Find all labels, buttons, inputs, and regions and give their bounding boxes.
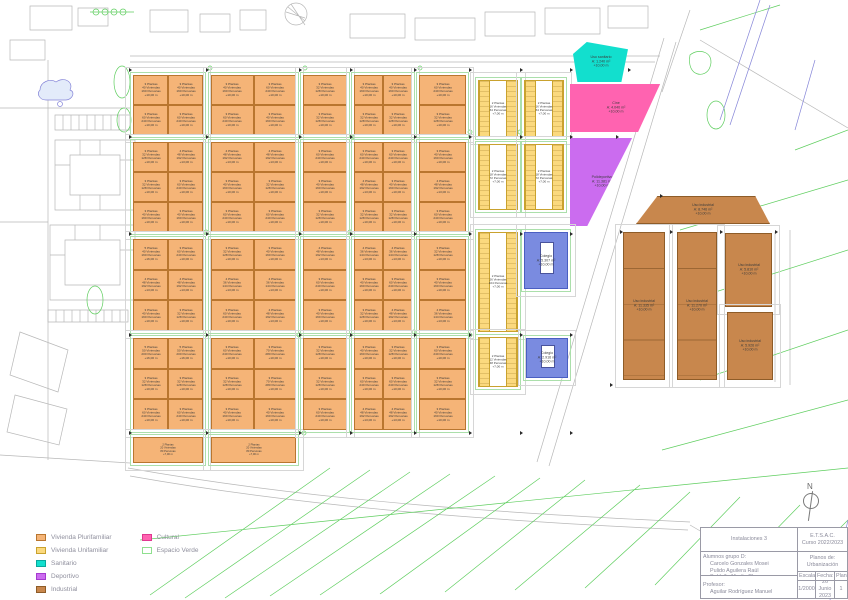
- survey-tick: [350, 68, 353, 72]
- parcel-label: 3 Plantas60 Viviendas240 Personas+10,00 …: [176, 113, 195, 127]
- parcel-plurifamiliar: 4 Plantas48 Viviendas192 Personas+13,00 …: [419, 172, 466, 202]
- parcel-plurifamiliar: 3 Plantas32 Viviendas128 Personas+10,00 …: [383, 202, 412, 232]
- survey-tick: [720, 230, 723, 234]
- parcel-plurifamiliar: 3 Plantas60 Viviendas240 Personas+10,00 …: [211, 300, 254, 331]
- parcel-label: 3 Plantas40 Viviendas160 Personas+10,00 …: [433, 150, 452, 164]
- parcel-plurifamiliar: 3 Plantas60 Viviendas240 Personas+10,00 …: [303, 142, 347, 172]
- parcel-label: 3 Plantas40 Viviendas160 Personas+10,00 …: [359, 278, 378, 292]
- survey-tick: [610, 383, 613, 387]
- parcel-label: 3 Plantas60 Viviendas240 Personas+10,00 …: [388, 278, 407, 292]
- parcel-label: 3 Plantas40 Viviendas160 Personas+10,00 …: [359, 346, 378, 360]
- survey-tick: [414, 68, 417, 72]
- parcel-plurifamiliar: 3 Plantas60 Viviendas240 Personas+10,00 …: [354, 142, 383, 172]
- parcel-label: ColegioA: 5.307 m²+10,00 m: [537, 254, 556, 266]
- parcel-plurifamiliar: 3 Plantas32 Viviendas128 Personas+10,00 …: [383, 105, 412, 135]
- survey-tick: [206, 431, 209, 435]
- parcel-sanitario: Uso sanitarioA: 1.240 m²+10,00 m: [573, 42, 628, 82]
- parcel-label: Uso industrialA: 5.810 m²+10,00 m: [738, 264, 760, 276]
- parcel-label: 3 Plantas40 Viviendas160 Personas+10,00 …: [141, 83, 160, 97]
- parcel-label: 2 Plantas20 Viviendas80 Personas+7,00 m: [160, 444, 175, 456]
- survey-tick: [206, 333, 209, 337]
- parcel-plurifamiliar: 4 Plantas48 Viviendas192 Personas+13,00 …: [254, 300, 297, 331]
- swatch-plurifamiliar: [36, 534, 46, 541]
- parcel-plurifamiliar: 3 Plantas60 Viviendas240 Personas+10,00 …: [303, 399, 347, 430]
- parcel-label: 2 Plantas26 Viviendas104 Personas+7,00 m: [489, 275, 508, 289]
- parcel-plurifamiliar: 3 Plantas32 Viviendas128 Personas+10,00 …: [354, 300, 383, 331]
- parcel-label: 3 Plantas40 Viviendas160 Personas+10,00 …: [223, 180, 242, 194]
- parcel-plurifamiliar: 3 Plantas60 Viviendas240 Personas+10,00 …: [383, 270, 412, 301]
- survey-tick: [299, 68, 302, 72]
- parcel-plurifamiliar: 3 Plantas60 Viviendas240 Personas+10,00 …: [254, 202, 297, 232]
- parcel-plurifamiliar: 5 Plantas40 Viviendas160 Personas+16,00 …: [133, 239, 168, 270]
- parcel-label: 3 Plantas40 Viviendas160 Personas+10,00 …: [359, 83, 378, 97]
- parcel-label: 3 Plantas60 Viviendas240 Personas+10,00 …: [265, 210, 284, 224]
- parcel-plurifamiliar: 3 Plantas32 Viviendas128 Personas+10,00 …: [133, 369, 168, 400]
- project-title: Instalaciones 3: [701, 528, 797, 551]
- parcel-label: 3 Plantas60 Viviendas240 Personas+10,00 …: [176, 407, 195, 421]
- swatch-industrial: [36, 586, 46, 593]
- parcel-plurifamiliar: 3 Plantas32 Viviendas128 Personas+10,00 …: [133, 172, 168, 202]
- parcel-plurifamiliar: 3 Plantas60 Viviendas240 Personas+10,00 …: [211, 202, 254, 232]
- school-course: E.T.S.A.C. Curso 2022/2023: [797, 528, 847, 551]
- parcel-label: 3 Plantas40 Viviendas160 Personas+10,00 …: [223, 83, 242, 97]
- professor-cell: Profesor: Aguilar Rodríguez Manuel: [701, 575, 797, 598]
- date-value: 26 Junio 2023: [815, 580, 834, 598]
- parcel-plurifamiliar: 3 Plantas40 Viviendas160 Personas+10,00 …: [254, 105, 297, 135]
- parcel-industrial: Uso industrialA: 5.810 m²+10,00 m: [725, 233, 772, 307]
- parcel-label: 4 Plantas48 Viviendas192 Personas+13,00 …: [141, 278, 160, 292]
- survey-tick: [660, 194, 663, 198]
- urban-plan-sheet: 3 Plantas40 Viviendas160 Personas+10,00 …: [0, 0, 848, 600]
- scale-value: 1/2000: [797, 580, 815, 598]
- parcel-label: 3 Plantas60 Viviendas240 Personas+10,00 …: [265, 83, 284, 97]
- parcel-label: 3 Plantas60 Viviendas240 Personas+10,00 …: [315, 278, 334, 292]
- parcel-label: 4 Plantas48 Viviendas192 Personas+13,00 …: [265, 150, 284, 164]
- student-name-2: Pulido Aguilera Raúl: [703, 568, 795, 575]
- parcel-plurifamiliar: 3 Plantas40 Viviendas160 Personas+10,00 …: [168, 75, 203, 105]
- survey-tick: [414, 135, 417, 139]
- parcel-label: Uso industrialA: 5.926 m²+10,00 m: [739, 340, 761, 352]
- survey-tick: [299, 431, 302, 435]
- parcel-plurifamiliar: 4 Plantas48 Viviendas192 Personas+13,00 …: [354, 172, 383, 202]
- parcel-label: CineA: 4.040 m²+10,00 m: [607, 102, 626, 114]
- parcel-plurifamiliar: 5 Plantas50 Viviendas200 Personas+16,00 …: [133, 338, 168, 369]
- parcel-docente: ColegioA: 2.916 m²+10,00 m: [526, 338, 568, 378]
- swatch-cultural: [142, 534, 152, 541]
- legend-label: Deportivo: [51, 573, 79, 580]
- parcel-label: 3 Plantas40 Viviendas160 Personas+10,00 …: [141, 308, 160, 322]
- legend-item-industrial: Industrial: [36, 586, 112, 593]
- parcel-plurifamiliar: 4 Plantas48 Viviendas192 Personas+13,00 …: [211, 142, 254, 172]
- parcel-plurifamiliar: 3 Plantas60 Viviendas240 Personas+10,00 …: [168, 239, 203, 270]
- parcel-label: 2 Plantas18 Viviendas72 Personas+7,00 m: [489, 170, 506, 184]
- parcel-label: 3 Plantas60 Viviendas240 Personas+10,00 …: [223, 346, 242, 360]
- survey-tick: [570, 232, 573, 236]
- title-block: Instalaciones 3 E.T.S.A.C. Curso 2022/20…: [700, 527, 848, 599]
- parcel-plurifamiliar: 3 Plantas40 Viviendas160 Personas+10,00 …: [254, 239, 297, 270]
- parcel-docente: ColegioA: 5.307 m²+10,00 m: [524, 232, 568, 289]
- parcel-label: 3 Plantas32 Viviendas128 Personas+10,00 …: [176, 308, 195, 322]
- survey-tick: [350, 135, 353, 139]
- parcel-label: 3 Plantas60 Viviendas240 Personas+10,00 …: [176, 180, 195, 194]
- students-cell: Alumnos grupo D: Carcelo Gonzales Mosei …: [701, 551, 797, 575]
- parcel-label: 4 Plantas48 Viviendas192 Personas+13,00 …: [315, 247, 334, 261]
- survey-tick: [469, 431, 472, 435]
- parcel-plurifamiliar: 3 Plantas40 Viviendas160 Personas+10,00 …: [133, 300, 168, 331]
- parcel-label: 3 Plantas32 Viviendas128 Personas+10,00 …: [176, 377, 195, 391]
- survey-tick: [520, 232, 523, 236]
- survey-tick: [469, 232, 472, 236]
- parcel-plurifamiliar: 3 Plantas32 Viviendas128 Personas+10,00 …: [419, 369, 466, 400]
- parcel-label: 3 Plantas32 Viviendas128 Personas+10,00 …: [388, 210, 407, 224]
- survey-tick: [616, 135, 619, 139]
- parcel-label: 3 Plantas60 Viviendas240 Personas+10,00 …: [315, 407, 334, 421]
- legend-column-right: Cultural Espacio Verde: [142, 534, 199, 593]
- swatch-unifamiliar: [36, 547, 46, 554]
- parcel-label: 3 Plantas60 Viviendas240 Personas+10,00 …: [433, 83, 452, 97]
- parcel-plurifamiliar: 3 Plantas40 Viviendas160 Personas+10,00 …: [419, 142, 466, 172]
- row-house-band: [506, 338, 517, 386]
- survey-tick: [775, 230, 778, 234]
- parcel-plurifamiliar: 3 Plantas60 Viviendas240 Personas+10,00 …: [211, 338, 254, 369]
- parcel-label: 4 Plantas48 Viviendas192 Personas+13,00 …: [176, 150, 195, 164]
- parcel-cultural: CineA: 4.040 m²+10,00 m: [570, 84, 662, 132]
- parcel-plurifamiliar: 4 Plantas48 Viviendas192 Personas+13,00 …: [383, 399, 412, 430]
- parcel-industrial: Uso industrialA: 8.746 m²+10,00 m: [636, 196, 770, 224]
- parcel-industrial: Uso industrialA: 5.926 m²+10,00 m: [727, 312, 773, 380]
- parcel-label: 3 Plantas40 Viviendas160 Personas+10,00 …: [388, 83, 407, 97]
- parcel-unifamiliar: 2 Plantas16 Viviendas64 Personas+7,00 m: [478, 80, 518, 137]
- parcel-plurifamiliar: 4 Plantas48 Viviendas192 Personas+13,00 …: [168, 142, 203, 172]
- survey-tick: [206, 135, 209, 139]
- parcel-label: 5 Plantas50 Viviendas200 Personas+16,00 …: [176, 346, 195, 360]
- parcel-label: 3 Plantas60 Viviendas240 Personas+10,00 …: [433, 210, 452, 224]
- parcel-label: 3 Plantas32 Viviendas128 Personas+10,00 …: [141, 180, 160, 194]
- parcel-label: 3 Plantas32 Viviendas128 Personas+10,00 …: [141, 377, 160, 391]
- parcel-label: 3 Plantas32 Viviendas128 Personas+10,00 …: [359, 113, 378, 127]
- parcel-plurifamiliar: 3 Plantas60 Viviendas240 Personas+10,00 …: [419, 75, 466, 105]
- parcel-plurifamiliar: 3 Plantas40 Viviendas160 Personas+10,00 …: [419, 270, 466, 301]
- survey-tick: [206, 232, 209, 236]
- legend-label: Industrial: [51, 586, 77, 593]
- parcel-plurifamiliar: 3 Plantas32 Viviendas128 Personas+10,00 …: [303, 75, 347, 105]
- parcel-deportivo: PolideportivoA: 11.381 m²+10,00 m: [570, 138, 634, 226]
- parcel-plurifamiliar: 3 Plantas60 Viviendas240 Personas+10,00 …: [211, 105, 254, 135]
- parcel-label: 3 Plantas60 Viviendas240 Personas+10,00 …: [223, 308, 242, 322]
- parcel-plurifamiliar: 3 Plantas32 Viviendas128 Personas+10,00 …: [303, 369, 347, 400]
- parcel-label: 3 Plantas40 Viviendas160 Personas+10,00 …: [388, 180, 407, 194]
- sheet-label: Plano:: [834, 571, 847, 580]
- plans-cell: Planos de: Urbanización: [797, 551, 847, 571]
- survey-tick: [570, 431, 573, 435]
- parcel-label: 3 Plantas32 Viviendas128 Personas+10,00 …: [315, 346, 334, 360]
- parcel-label: 3 Plantas60 Viviendas240 Personas+10,00 …: [315, 150, 334, 164]
- survey-tick: [129, 333, 132, 337]
- parcel-label: 4 Plantas36 Viviendas144 Personas+13,00 …: [359, 247, 378, 261]
- parcel-plurifamiliar: 4 Plantas48 Viviendas192 Personas+13,00 …: [303, 239, 347, 270]
- professor-name: Aguilar Rodríguez Manuel: [703, 589, 795, 596]
- parcel-plurifamiliar: 5 Plantas50 Viviendas200 Personas+16,00 …: [168, 338, 203, 369]
- survey-tick: [469, 135, 472, 139]
- parcel-label: 3 Plantas32 Viviendas128 Personas+10,00 …: [433, 113, 452, 127]
- parcel-label: 3 Plantas60 Viviendas240 Personas+10,00 …: [433, 346, 452, 360]
- parcel-plurifamiliar: 3 Plantas40 Viviendas160 Personas+10,00 …: [133, 75, 168, 105]
- parcel-plurifamiliar: 3 Plantas60 Viviendas240 Personas+10,00 …: [303, 270, 347, 301]
- parcel-plurifamiliar: 3 Plantas70 Viviendas280 Personas+10,00 …: [254, 369, 297, 400]
- parcel-plurifamiliar: 3 Plantas60 Viviendas240 Personas+10,00 …: [254, 75, 297, 105]
- parcel-unifamiliar: 2 Plantas18 Viviendas72 Personas+7,00 m: [524, 144, 564, 210]
- parcel-plurifamiliar: 4 Plantas48 Viviendas192 Personas+13,00 …: [168, 270, 203, 301]
- parcel-plurifamiliar: 3 Plantas40 Viviendas160 Personas+10,00 …: [303, 300, 347, 331]
- parcel-plurifamiliar: 3 Plantas40 Viviendas160 Personas+10,00 …: [419, 399, 466, 430]
- parcel-label: 3 Plantas32 Viviendas128 Personas+10,00 …: [223, 377, 242, 391]
- parcel-label: 3 Plantas40 Viviendas160 Personas+10,00 …: [315, 180, 334, 194]
- parcel-plurifamiliar: 3 Plantas60 Viviendas240 Personas+10,00 …: [419, 338, 466, 369]
- parcel-label: 3 Plantas60 Viviendas240 Personas+10,00 …: [388, 377, 407, 391]
- survey-tick: [520, 68, 523, 72]
- parcel-label: 5 Plantas50 Viviendas200 Personas+16,00 …: [141, 346, 160, 360]
- parcel-plurifamiliar: 3 Plantas70 Viviendas280 Personas+10,00 …: [254, 338, 297, 369]
- parcel-plurifamiliar: 3 Plantas40 Viviendas160 Personas+10,00 …: [354, 338, 383, 369]
- plan-canvas: 3 Plantas40 Viviendas160 Personas+10,00 …: [0, 0, 848, 600]
- legend-item-espacio-verde: Espacio Verde: [142, 547, 199, 554]
- survey-tick: [350, 232, 353, 236]
- parcel-label: 2 Plantas12 Viviendas48 Personas+7,00 m: [489, 355, 506, 369]
- parcel-plurifamiliar: 4 Plantas48 Viviendas192 Personas+13,00 …: [254, 142, 297, 172]
- parcel-plurifamiliar: 2 Plantas20 Viviendas80 Personas+7,00 m: [211, 437, 296, 463]
- parcel-plurifamiliar: 4 Plantas48 Viviendas192 Personas+13,00 …: [133, 270, 168, 301]
- parcel-plurifamiliar: 4 Plantas36 Viviendas144 Personas+13,00 …: [419, 300, 466, 331]
- parcel-label: 3 Plantas32 Viviendas128 Personas+10,00 …: [315, 377, 334, 391]
- parcel-plurifamiliar: 3 Plantas60 Viviendas240 Personas+10,00 …: [168, 399, 203, 430]
- parcel-label: 3 Plantas60 Viviendas240 Personas+10,00 …: [141, 113, 160, 127]
- parcel-label: 3 Plantas60 Viviendas240 Personas+10,00 …: [176, 247, 195, 261]
- school-name: E.T.S.A.C.: [810, 533, 835, 540]
- parcel-label: 3 Plantas32 Viviendas128 Personas+10,00 …: [315, 113, 334, 127]
- parcel-label: 3 Plantas40 Viviendas160 Personas+10,00 …: [141, 210, 160, 224]
- date-label: Fecha:: [815, 571, 834, 580]
- swatch-deportivo: [36, 573, 46, 580]
- survey-tick: [129, 68, 132, 72]
- survey-tick: [129, 232, 132, 236]
- parcel-unifamiliar: 2 Plantas16 Viviendas64 Personas+7,00 m: [524, 80, 564, 137]
- parcel-label: Uso industrialA: 8.746 m²+10,00 m: [692, 204, 714, 216]
- parcel-label: 3 Plantas40 Viviendas160 Personas+10,00 …: [433, 407, 452, 421]
- legend: Vivienda Plurifamiliar Vivienda Unifamil…: [36, 534, 199, 593]
- parcel-label: 5 Plantas40 Viviendas160 Personas+16,00 …: [141, 247, 160, 261]
- parcel-label: 4 Plantas48 Viviendas192 Personas+13,00 …: [223, 150, 242, 164]
- parcel-plurifamiliar: 4 Plantas36 Viviendas144 Personas+13,00 …: [354, 239, 383, 270]
- parcel-label: PolideportivoA: 11.381 m²+10,00 m: [592, 176, 613, 188]
- parcel-plurifamiliar: 3 Plantas32 Viviendas128 Personas+10,00 …: [354, 202, 383, 232]
- parcel-plurifamiliar: 3 Plantas40 Viviendas160 Personas+10,00 …: [383, 172, 412, 202]
- parcel-plurifamiliar: 3 Plantas40 Viviendas160 Personas+10,00 …: [254, 399, 297, 430]
- parcel-plurifamiliar: 3 Plantas40 Viviendas160 Personas+10,00 …: [211, 75, 254, 105]
- parcel-plurifamiliar: 3 Plantas40 Viviendas160 Personas+10,00 …: [383, 75, 412, 105]
- parcel-label: 3 Plantas32 Viviendas128 Personas+10,00 …: [433, 377, 452, 391]
- parcel-plurifamiliar: 3 Plantas32 Viviendas128 Personas+10,00 …: [303, 105, 347, 135]
- north-label: N: [807, 482, 813, 491]
- parcel-label: 3 Plantas32 Viviendas128 Personas+10,00 …: [433, 247, 452, 261]
- survey-tick: [414, 333, 417, 337]
- professor-label: Profesor:: [703, 582, 795, 589]
- parcel-plurifamiliar: 3 Plantas60 Viviendas240 Personas+10,00 …: [354, 369, 383, 400]
- parcel-plurifamiliar: 3 Plantas32 Viviendas128 Personas+10,00 …: [168, 369, 203, 400]
- legend-label: Cultural: [157, 534, 179, 541]
- parcel-label: 3 Plantas32 Viviendas128 Personas+10,00 …: [359, 308, 378, 322]
- parcel-plurifamiliar: 3 Plantas60 Viviendas240 Personas+10,00 …: [168, 172, 203, 202]
- parcel-label: 3 Plantas32 Viviendas128 Personas+10,00 …: [388, 346, 407, 360]
- parcel-label: ColegioA: 2.916 m²+10,00 m: [538, 352, 557, 364]
- legend-item-cultural: Cultural: [142, 534, 199, 541]
- parcel-label: 3 Plantas40 Viviendas160 Personas+10,00 …: [433, 278, 452, 292]
- parcel-label: 3 Plantas70 Viviendas280 Personas+10,00 …: [265, 377, 284, 391]
- parcel-plurifamiliar: 3 Plantas40 Viviendas160 Personas+10,00 …: [211, 399, 254, 430]
- parcel-label: 4 Plantas48 Viviendas192 Personas+13,00 …: [433, 180, 452, 194]
- row-house-band: [552, 145, 563, 209]
- parcel-plurifamiliar: 3 Plantas60 Viviendas240 Personas+10,00 …: [383, 369, 412, 400]
- parcel-label: 3 Plantas32 Viviendas128 Personas+10,00 …: [315, 83, 334, 97]
- survey-tick: [299, 135, 302, 139]
- school-course-inner: E.T.S.A.C. Curso 2022/2023: [800, 530, 845, 549]
- parcel-label: 2 Plantas16 Viviendas64 Personas+7,00 m: [535, 102, 552, 116]
- legend-item-vivienda-unifamiliar: Vivienda Unifamiliar: [36, 547, 112, 554]
- parcel-label: 3 Plantas32 Viviendas128 Personas+10,00 …: [141, 150, 160, 164]
- survey-tick: [350, 333, 353, 337]
- parcel-label: 3 Plantas40 Viviendas160 Personas+10,00 …: [223, 407, 242, 421]
- parcel-label: 3 Plantas60 Viviendas240 Personas+10,00 …: [223, 113, 242, 127]
- parcel-plurifamiliar: 3 Plantas32 Viviendas128 Personas+10,00 …: [383, 338, 412, 369]
- legend-column-left: Vivienda Plurifamiliar Vivienda Unifamil…: [36, 534, 112, 593]
- legend-label: Vivienda Plurifamiliar: [51, 534, 112, 541]
- legend-label: Vivienda Unifamiliar: [51, 547, 108, 554]
- parcel-label: 4 Plantas36 Viviendas144 Personas+13,00 …: [388, 247, 407, 261]
- parcel-label: 4 Plantas48 Viviendas192 Personas+13,00 …: [265, 308, 284, 322]
- parcel-plurifamiliar: 3 Plantas60 Viviendas240 Personas+10,00 …: [419, 202, 466, 232]
- legend-label: Sanitario: [51, 560, 77, 567]
- parcel-plurifamiliar: 3 Plantas60 Viviendas240 Personas+10,00 …: [383, 142, 412, 172]
- parcel-label: 3 Plantas60 Viviendas240 Personas+10,00 …: [359, 377, 378, 391]
- parcel-plurifamiliar: 3 Plantas32 Viviendas128 Personas+10,00 …: [303, 338, 347, 369]
- parcel-plurifamiliar: 3 Plantas40 Viviendas160 Personas+10,00 …: [354, 270, 383, 301]
- survey-tick: [520, 135, 523, 139]
- parcel-plurifamiliar: 4 Plantas36 Viviendas144 Personas+13,00 …: [383, 239, 412, 270]
- parcel-unifamiliar: 2 Plantas18 Viviendas72 Personas+7,00 m: [478, 144, 518, 210]
- survey-tick: [570, 333, 573, 337]
- swatch-sanitario: [36, 560, 46, 567]
- parcel-label: 3 Plantas40 Viviendas160 Personas+10,00 …: [265, 407, 284, 421]
- parcel-label: 4 Plantas36 Viviendas144 Personas+13,00 …: [265, 278, 284, 292]
- parcel-label: 3 Plantas60 Viviendas240 Personas+10,00 …: [388, 150, 407, 164]
- survey-tick: [129, 431, 132, 435]
- parcel-label: 3 Plantas40 Viviendas160 Personas+10,00 …: [315, 308, 334, 322]
- course: Curso 2022/2023: [802, 540, 843, 547]
- parcel-plurifamiliar: 3 Plantas60 Viviendas240 Personas+10,00 …: [133, 399, 168, 430]
- parcel-label: 4 Plantas48 Viviendas192 Personas+13,00 …: [359, 407, 378, 421]
- parcel-plurifamiliar: 3 Plantas60 Viviendas240 Personas+10,00 …: [168, 105, 203, 135]
- plans-value: Urbanización: [807, 562, 838, 569]
- survey-tick: [670, 230, 673, 234]
- survey-tick: [414, 232, 417, 236]
- parcel-plurifamiliar: 3 Plantas32 Viviendas128 Personas+10,00 …: [254, 172, 297, 202]
- parcel-plurifamiliar: 4 Plantas48 Viviendas192 Personas+13,00 …: [383, 300, 412, 331]
- parcel-label: 4 Plantas48 Viviendas192 Personas+13,00 …: [176, 278, 195, 292]
- plans-inner: Planos de: Urbanización: [800, 554, 845, 569]
- sheet-value: 1: [834, 580, 847, 598]
- parcel-label: 3 Plantas60 Viviendas240 Personas+10,00 …: [359, 150, 378, 164]
- students-label: Alumnos grupo D:: [703, 554, 795, 561]
- parcel-industrial: Uso industrialA: 11.270 m²+10,00 m: [677, 232, 717, 380]
- survey-tick: [469, 68, 472, 72]
- parcel-label: 3 Plantas70 Viviendas280 Personas+10,00 …: [265, 346, 284, 360]
- survey-tick: [628, 68, 631, 72]
- survey-tick: [129, 135, 132, 139]
- parcel-plurifamiliar: 3 Plantas32 Viviendas128 Personas+10,00 …: [133, 142, 168, 172]
- parcel-label: 3 Plantas32 Viviendas128 Personas+10,00 …: [359, 210, 378, 224]
- scale-label: Escala:: [797, 571, 815, 580]
- parcel-label: 3 Plantas40 Viviendas160 Personas+10,00 …: [265, 247, 284, 261]
- parcel-plurifamiliar: 3 Plantas60 Viviendas240 Personas+10,00 …: [133, 105, 168, 135]
- parcel-label: 4 Plantas36 Viviendas144 Personas+13,00 …: [223, 278, 242, 292]
- parcel-label: 4 Plantas48 Viviendas192 Personas+13,00 …: [359, 180, 378, 194]
- parcel-label: 4 Plantas48 Viviendas192 Personas+13,00 …: [388, 308, 407, 322]
- parcel-label: 3 Plantas32 Viviendas128 Personas+10,00 …: [388, 113, 407, 127]
- parcel-plurifamiliar: 3 Plantas40 Viviendas160 Personas+10,00 …: [211, 172, 254, 202]
- parcel-unifamiliar: 2 Plantas12 Viviendas48 Personas+7,00 m: [478, 337, 518, 387]
- parcel-label: 3 Plantas32 Viviendas128 Personas+10,00 …: [315, 210, 334, 224]
- survey-tick: [570, 135, 573, 139]
- parcel-plurifamiliar: 3 Plantas32 Viviendas128 Personas+10,00 …: [419, 239, 466, 270]
- north-arrow: N: [798, 482, 828, 527]
- row-house-band: [552, 81, 563, 136]
- parcel-plurifamiliar: 3 Plantas32 Viviendas128 Personas+10,00 …: [303, 202, 347, 232]
- parcel-plurifamiliar: 3 Plantas32 Viviendas128 Personas+10,00 …: [419, 105, 466, 135]
- legend-item-vivienda-plurifamiliar: Vivienda Plurifamiliar: [36, 534, 112, 541]
- parcel-label: 3 Plantas40 Viviendas160 Personas+10,00 …: [176, 210, 195, 224]
- parcel-plurifamiliar: 3 Plantas40 Viviendas160 Personas+10,00 …: [133, 202, 168, 232]
- parcel-label: Uso sanitarioA: 1.240 m²+10,00 m: [590, 56, 611, 68]
- legend-label: Espacio Verde: [157, 547, 199, 554]
- survey-tick: [520, 333, 523, 337]
- survey-tick: [299, 333, 302, 337]
- parcel-plurifamiliar: 3 Plantas40 Viviendas160 Personas+10,00 …: [303, 172, 347, 202]
- parcel-label: 3 Plantas32 Viviendas128 Personas+10,00 …: [265, 180, 284, 194]
- swatch-espacio-verde: [142, 547, 152, 554]
- survey-tick: [206, 68, 209, 72]
- parcel-plurifamiliar: 3 Plantas32 Viviendas128 Personas+10,00 …: [211, 369, 254, 400]
- parcel-label: 4 Plantas36 Viviendas144 Personas+13,00 …: [433, 308, 452, 322]
- legend-item-sanitario: Sanitario: [36, 560, 112, 567]
- survey-tick: [299, 232, 302, 236]
- parcel-label: 2 Plantas20 Viviendas80 Personas+7,00 m: [246, 444, 261, 456]
- parcel-industrial: Uso industrialA: 11.335 m²+10,00 m: [623, 232, 665, 380]
- legend-item-deportivo: Deportivo: [36, 573, 112, 580]
- parcel-plurifamiliar: 3 Plantas32 Viviendas128 Personas+10,00 …: [211, 239, 254, 270]
- survey-tick: [520, 431, 523, 435]
- parcel-label: 2 Plantas18 Viviendas72 Personas+7,00 m: [535, 170, 552, 184]
- parcel-label: 3 Plantas40 Viviendas160 Personas+10,00 …: [265, 113, 284, 127]
- parcel-plurifamiliar: 2 Plantas20 Viviendas80 Personas+7,00 m: [133, 437, 203, 463]
- survey-tick: [620, 230, 623, 234]
- parcel-label: Uso industrialA: 11.270 m²+10,00 m: [686, 300, 708, 312]
- parcel-label: 4 Plantas48 Viviendas192 Personas+13,00 …: [388, 407, 407, 421]
- student-name-1: Carcelo Gonzales Mosei: [703, 561, 795, 568]
- parcel-plurifamiliar: 3 Plantas32 Viviendas128 Personas+10,00 …: [354, 105, 383, 135]
- parcel-plurifamiliar: 4 Plantas36 Viviendas144 Personas+13,00 …: [211, 270, 254, 301]
- parcel-label: 3 Plantas60 Viviendas240 Personas+10,00 …: [223, 210, 242, 224]
- parcel-plurifamiliar: 3 Plantas32 Viviendas128 Personas+10,00 …: [168, 300, 203, 331]
- plans-label: Planos de:: [810, 555, 835, 562]
